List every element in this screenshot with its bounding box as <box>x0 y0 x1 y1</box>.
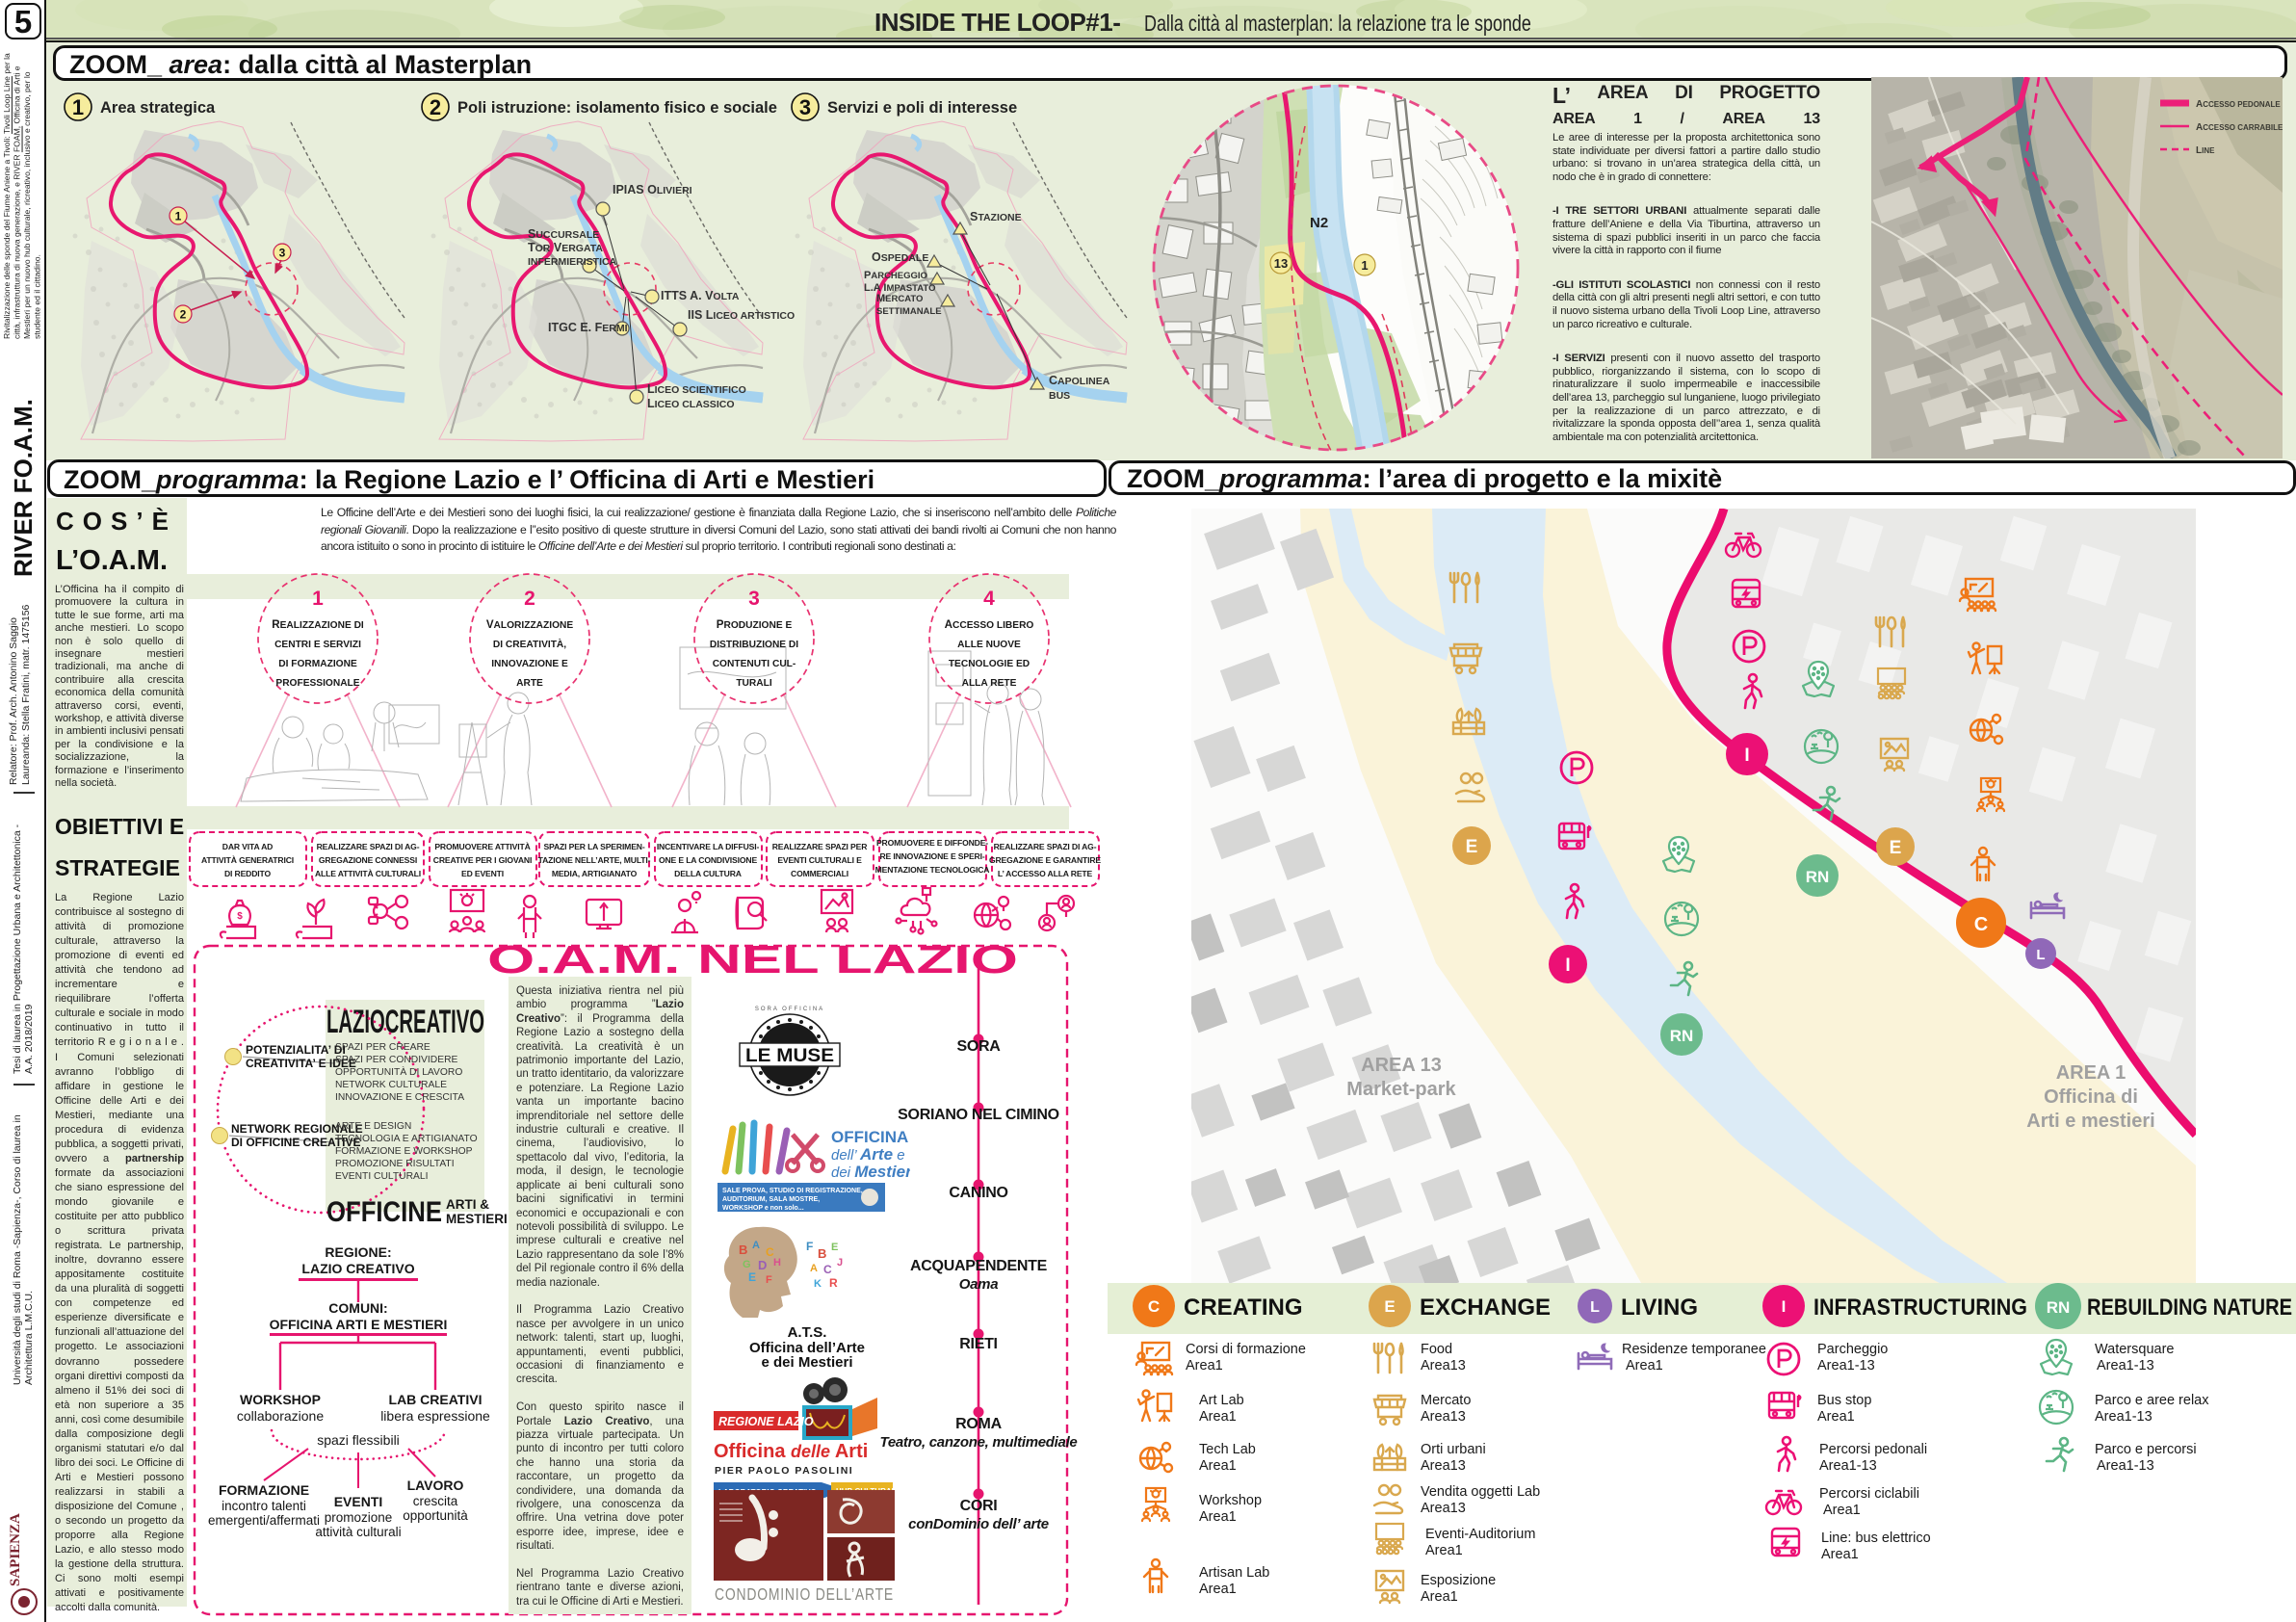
svg-text:LAVORO: LAVORO <box>407 1478 464 1493</box>
svg-text:1: 1 <box>72 95 84 119</box>
svg-text:REALIZZARE SPAZI PER: REALIZZARE SPAZI PER <box>772 842 868 851</box>
svg-text:I: I <box>1744 746 1749 766</box>
svg-text:INNOVAZIONE E: INNOVAZIONE E <box>491 659 568 669</box>
svg-text:L: L <box>1590 1299 1600 1316</box>
svg-text:REALIZZAZIONE DI: REALIZZAZIONE DI <box>272 618 364 631</box>
svg-text:TOR VERGATA: TOR VERGATA <box>528 241 603 254</box>
svg-text:OFFICINA ARTI E MESTIERI: OFFICINA ARTI E MESTIERI <box>270 1317 448 1332</box>
svg-text:C: C <box>1974 914 1988 935</box>
svg-text:B: B <box>739 1243 747 1257</box>
svg-text:Area1-13: Area1-13 <box>2097 1458 2154 1474</box>
svg-text:Servizi e poli di interesse: Servizi e poli di interesse <box>827 99 1017 117</box>
svg-text:ACCESSO CARRABILE: ACCESSO CARRABILE <box>2196 122 2283 133</box>
svg-text:Watersquare: Watersquare <box>2095 1342 2174 1357</box>
svg-text:MERCATO: MERCATO <box>876 293 923 304</box>
svg-text:CONDOMINIO DELL’ARTE: CONDOMINIO DELL’ARTE <box>715 1584 894 1604</box>
svg-text:DELLA CULTURA: DELLA CULTURA <box>674 869 742 878</box>
svg-text:Tech Lab: Tech Lab <box>1199 1442 1256 1457</box>
svg-text:Area1: Area1 <box>1817 1409 1855 1425</box>
svg-text:Corsi di formazione: Corsi di formazione <box>1186 1342 1306 1357</box>
svg-text:WORKSHOP e non solo...: WORKSHOP e non solo... <box>722 1205 804 1212</box>
svg-text:RIETI: RIETI <box>959 1336 997 1352</box>
svg-text:SALE PROVA, STUDIO DI REGISTRA: SALE PROVA, STUDIO DI REGISTRAZIONE, <box>722 1188 863 1194</box>
svg-text:D: D <box>758 1258 767 1272</box>
svg-text:E: E <box>748 1270 756 1284</box>
svg-text:Area1: Area1 <box>1823 1503 1861 1518</box>
svg-text:F: F <box>806 1240 813 1253</box>
svg-text:FORMAZIONE E WORKSHOP: FORMAZIONE E WORKSHOP <box>335 1146 473 1157</box>
svg-text:TAZIONE NELL’ARTE, MULTI-: TAZIONE NELL’ARTE, MULTI- <box>538 855 651 865</box>
svg-text:TURALI: TURALI <box>736 678 772 689</box>
svg-text:Mercato: Mercato <box>1421 1393 1471 1408</box>
svg-text:Area1: Area1 <box>1186 1358 1223 1373</box>
svg-text:INFERMIERISTICA: INFERMIERISTICA <box>528 256 617 268</box>
svg-text:VALORIZZAZIONE: VALORIZZAZIONE <box>486 618 574 631</box>
svg-text:Area1-13: Area1-13 <box>2095 1409 2152 1425</box>
svg-text:F: F <box>766 1274 772 1286</box>
svg-text:I: I <box>1565 955 1570 976</box>
svg-text:Residenze temporanee: Residenze temporanee <box>1622 1342 1766 1357</box>
svg-text:OFFICINE: OFFICINE <box>326 1196 442 1228</box>
svg-text:REALIZZARE SPAZI DI AG-: REALIZZARE SPAZI DI AG- <box>317 842 420 851</box>
svg-text:CREATIVE PER I GIOVANI: CREATIVE PER I GIOVANI <box>433 855 532 865</box>
svg-text:OSPEDALE: OSPEDALE <box>872 250 928 264</box>
svg-text:DI FORMAZIONE: DI FORMAZIONE <box>278 659 357 669</box>
svg-text:COMUNI:: COMUNI: <box>328 1300 387 1316</box>
svg-text:2: 2 <box>524 588 535 610</box>
svg-text:collaborazione: collaborazione <box>237 1408 324 1424</box>
svg-text:CAPOLINEA: CAPOLINEA <box>1049 374 1110 387</box>
svg-text:PROMUOVERE E DIFFONDE-: PROMUOVERE E DIFFONDE- <box>876 838 988 848</box>
svg-text:2: 2 <box>180 308 187 322</box>
svg-text:1: 1 <box>1361 258 1368 273</box>
svg-text:LAB CREATIVI: LAB CREATIVI <box>389 1392 483 1407</box>
svg-text:Area13: Area13 <box>1421 1458 1466 1474</box>
svg-text:SUCCURSALE: SUCCURSALE <box>528 227 599 241</box>
svg-text:ONE E LA CONDIVISIONE: ONE E LA CONDIVISIONE <box>659 855 757 865</box>
svg-text:Esposizione: Esposizione <box>1421 1573 1496 1588</box>
svg-text:ALLE NUOVE: ALLE NUOVE <box>957 640 1021 650</box>
svg-text:Parco e percorsi: Parco e percorsi <box>2095 1442 2197 1457</box>
svg-text:Area1: Area1 <box>1199 1509 1237 1525</box>
svg-text:$: $ <box>237 911 243 922</box>
svg-text:Area1: Area1 <box>1821 1547 1859 1562</box>
svg-text:SETTIMANALE: SETTIMANALE <box>876 306 942 317</box>
svg-text:Food: Food <box>1421 1342 1452 1357</box>
svg-text:spazi flessibili: spazi flessibili <box>317 1432 400 1448</box>
svg-text:3: 3 <box>748 588 760 610</box>
svg-text:3: 3 <box>799 95 811 119</box>
svg-text:Area1: Area1 <box>1626 1358 1663 1373</box>
svg-text:STAZIONE: STAZIONE <box>970 210 1022 223</box>
svg-text:FORMAZIONE: FORMAZIONE <box>219 1482 309 1498</box>
svg-text:C: C <box>1148 1297 1160 1316</box>
svg-text:INCENTIVARE LA DIFFUSI-: INCENTIVARE LA DIFFUSI- <box>657 842 760 851</box>
svg-text:ARTI &: ARTI & <box>446 1197 489 1212</box>
svg-text:E: E <box>1890 838 1902 858</box>
svg-text:R: R <box>829 1276 838 1290</box>
svg-text:Market-park: Market-park <box>1346 1079 1456 1100</box>
svg-text:CORI: CORI <box>960 1498 998 1514</box>
svg-text:INNOVAZIONE E CRESCITA: INNOVAZIONE E CRESCITA <box>335 1092 464 1103</box>
svg-text:SPAZI PER CONDIVIDERE: SPAZI PER CONDIVIDERE <box>335 1055 458 1065</box>
svg-text:OPPORTUNITÀ DI LAVORO: OPPORTUNITÀ DI LAVORO <box>335 1065 462 1078</box>
svg-text:Area1: Area1 <box>1199 1409 1237 1425</box>
svg-text:PIER PAOLO PASOLINI: PIER PAOLO PASOLINI <box>715 1465 853 1477</box>
svg-text:Arti e mestieri: Arti e mestieri <box>2026 1111 2154 1132</box>
svg-text:PROFESSIONALE: PROFESSIONALE <box>275 678 359 689</box>
svg-text:dei Mestieri: dei Mestieri <box>831 1163 910 1181</box>
svg-text:Area strategica: Area strategica <box>100 99 216 117</box>
svg-text:DI CREATIVITÀ,: DI CREATIVITÀ, <box>493 638 566 650</box>
svg-text:I: I <box>1782 1297 1787 1316</box>
svg-text:LE MUSE: LE MUSE <box>745 1046 834 1066</box>
svg-text:libera espressione: libera espressione <box>380 1408 490 1424</box>
svg-text:ROMA: ROMA <box>955 1416 1002 1432</box>
svg-text:SORIANO NEL CIMINO: SORIANO NEL CIMINO <box>898 1107 1059 1123</box>
svg-text:ALLE ATTIVITÀ CULTURALI: ALLE ATTIVITÀ CULTURALI <box>315 869 421 878</box>
svg-text:CANINO: CANINO <box>949 1185 1007 1201</box>
svg-text:LAZIOCREATIVO: LAZIOCREATIVO <box>326 1004 484 1040</box>
svg-text:L’ ACCESSO ALLA RETE: L’ ACCESSO ALLA RETE <box>998 869 1093 878</box>
svg-text:EVENTI: EVENTI <box>334 1494 383 1509</box>
svg-text:POTENZIALITA’ DI: POTENZIALITA’ DI <box>246 1043 346 1057</box>
svg-text:NETWORK CULTURALE: NETWORK CULTURALE <box>335 1080 447 1090</box>
svg-text:ITGC E. FERMI: ITGC E. FERMI <box>548 321 628 334</box>
svg-text:AREA 13: AREA 13 <box>1361 1055 1442 1076</box>
svg-text:Art Lab: Art Lab <box>1199 1393 1244 1408</box>
svg-text:GREGAZIONE E GARANTIRE: GREGAZIONE E GARANTIRE <box>989 855 1101 865</box>
svg-text:N2: N2 <box>1310 215 1328 231</box>
svg-text:RN: RN <box>1806 868 1830 886</box>
svg-text:PROMUOVERE ATTIVITÀ: PROMUOVERE ATTIVITÀ <box>434 842 530 851</box>
svg-text:H: H <box>773 1257 781 1269</box>
svg-text:Area1: Area1 <box>1199 1582 1237 1597</box>
svg-text:C: C <box>823 1263 832 1276</box>
svg-text:conDominio dell’ arte: conDominio dell’ arte <box>908 1516 1049 1532</box>
svg-text:1: 1 <box>175 210 182 223</box>
svg-text:SPAZI PER LA SPERIMEN-: SPAZI PER LA SPERIMEN- <box>543 842 644 851</box>
svg-text:3: 3 <box>279 247 286 260</box>
svg-text:WORKSHOP: WORKSHOP <box>240 1392 321 1407</box>
svg-text:ACCESSO LIBERO: ACCESSO LIBERO <box>945 618 1034 631</box>
svg-text:SORA: SORA <box>956 1038 1001 1055</box>
svg-text:SPAZI PER CREARE: SPAZI PER CREARE <box>335 1042 430 1053</box>
svg-text:Percorsi ciclabili: Percorsi ciclabili <box>1819 1486 1919 1502</box>
svg-text:Officina delle Arti: Officina delle Arti <box>714 1441 868 1462</box>
svg-text:E: E <box>1384 1297 1395 1316</box>
svg-text:emergenti/affermati: emergenti/affermati <box>208 1513 320 1528</box>
svg-text:BUS: BUS <box>1049 390 1070 402</box>
svg-text:Area1: Area1 <box>1421 1589 1458 1605</box>
svg-text:DAR VITA AD: DAR VITA AD <box>222 842 273 851</box>
svg-text:GREGAZIONE CONNESSI: GREGAZIONE CONNESSI <box>319 855 417 865</box>
svg-text:MENTAZIONE TECNOLOGICA: MENTAZIONE TECNOLOGICA <box>875 865 990 875</box>
svg-text:REGIONE:: REGIONE: <box>325 1244 391 1260</box>
svg-text:MEDIA, ARTIGIANATO: MEDIA, ARTIGIANATO <box>552 869 638 878</box>
svg-text:J: J <box>837 1257 843 1269</box>
svg-text:Area1-13: Area1-13 <box>2097 1358 2154 1373</box>
svg-text:TECNOLOGIE ED: TECNOLOGIE ED <box>949 659 1030 669</box>
svg-text:Percorsi pedonali: Percorsi pedonali <box>1819 1442 1927 1457</box>
svg-text:REBUILDING NATURE: REBUILDING NATURE <box>2087 1295 2292 1321</box>
svg-text:Area1: Area1 <box>1199 1458 1237 1474</box>
svg-text:2: 2 <box>430 95 441 119</box>
svg-text:opportunità: opportunità <box>403 1508 468 1523</box>
svg-text:MESTIERI: MESTIERI <box>446 1212 508 1226</box>
svg-text:AREA 1: AREA 1 <box>2056 1062 2126 1084</box>
svg-text:ACQUAPENDENTE: ACQUAPENDENTE <box>910 1258 1048 1274</box>
svg-text:ITTS A. VOLTA: ITTS A. VOLTA <box>661 289 740 302</box>
svg-text:EVENTI CULTURALI: EVENTI CULTURALI <box>335 1171 429 1182</box>
svg-text:PRODUZIONE E: PRODUZIONE E <box>717 618 793 631</box>
svg-text:K: K <box>814 1278 822 1290</box>
svg-text:ALLA RETE: ALLA RETE <box>962 678 1017 689</box>
svg-text:RE INNOVAZIONE E SPERI-: RE INNOVAZIONE E SPERI- <box>879 851 984 861</box>
svg-text:LICEO CLASSICO: LICEO CLASSICO <box>647 397 734 410</box>
svg-text:LINE: LINE <box>2196 145 2215 156</box>
svg-text:ED EVENTI: ED EVENTI <box>461 869 504 878</box>
svg-text:COMMERCIALI: COMMERCIALI <box>791 869 848 878</box>
svg-text:CONTENUTI CUL-: CONTENUTI CUL- <box>713 659 796 669</box>
svg-text:crescita: crescita <box>413 1494 458 1508</box>
svg-text:G: G <box>743 1259 751 1270</box>
svg-text:Area1: Area1 <box>1425 1543 1463 1558</box>
svg-text:PROMOZIONE RISULTATI: PROMOZIONE RISULTATI <box>335 1159 455 1169</box>
svg-text:incontro talenti: incontro talenti <box>222 1499 306 1513</box>
svg-text:A: A <box>810 1263 818 1274</box>
svg-text:1: 1 <box>312 588 324 610</box>
svg-text:AUDITORIUM, SALA MOSTRE,: AUDITORIUM, SALA MOSTRE, <box>722 1196 820 1203</box>
svg-text:dell’ Arte e: dell’ Arte e <box>831 1145 905 1164</box>
svg-text:Line: bus elettrico: Line: bus elettrico <box>1821 1530 1931 1546</box>
svg-text:E: E <box>831 1242 838 1253</box>
svg-text:Poli istruzione: isolamento fi: Poli istruzione: isolamento fisico e soc… <box>457 99 777 117</box>
svg-text:CENTRI E SERVIZI: CENTRI E SERVIZI <box>274 640 361 650</box>
svg-text:Orti urbani: Orti urbani <box>1421 1442 1486 1457</box>
svg-text:ARTE E DESIGN: ARTE E DESIGN <box>335 1121 411 1132</box>
svg-text:Eventi-Auditorium: Eventi-Auditorium <box>1425 1527 1535 1542</box>
svg-text:INFRASTRUCTURING: INFRASTRUCTURING <box>1813 1295 2027 1321</box>
svg-text:Vendita oggetti Lab: Vendita oggetti Lab <box>1421 1484 1540 1500</box>
svg-text:EXCHANGE: EXCHANGE <box>1420 1295 1551 1321</box>
svg-text:13: 13 <box>1274 256 1288 271</box>
svg-text:L: L <box>2036 947 2045 963</box>
svg-text:Area1-13: Area1-13 <box>1817 1358 1875 1373</box>
svg-text:REGIONE LAZIO: REGIONE LAZIO <box>718 1415 814 1428</box>
svg-text:Parcheggio: Parcheggio <box>1817 1342 1888 1357</box>
svg-text:Artisan Lab: Artisan Lab <box>1199 1565 1269 1581</box>
svg-text:LIVING: LIVING <box>1621 1295 1698 1321</box>
svg-text:A: A <box>752 1240 760 1251</box>
svg-text:L.A IMPASTATO: L.A IMPASTATO <box>864 282 935 294</box>
svg-text:Area13: Area13 <box>1421 1501 1466 1516</box>
svg-text:4: 4 <box>983 588 995 610</box>
svg-text:DISTRIBUZIONE DI: DISTRIBUZIONE DI <box>710 640 798 650</box>
svg-text:e dei Mestieri: e dei Mestieri <box>761 1354 852 1371</box>
svg-text:REALIZZARE SPAZI DI AG-: REALIZZARE SPAZI DI AG- <box>994 842 1097 851</box>
svg-text:E: E <box>1466 837 1478 857</box>
svg-text:OFFICINA: OFFICINA <box>831 1128 908 1146</box>
svg-text:Parco e aree relax: Parco e aree relax <box>2095 1393 2209 1408</box>
svg-text:EVENTI CULTURALI E: EVENTI CULTURALI E <box>777 855 862 865</box>
svg-text:ACCESSO PEDONALE: ACCESSO PEDONALE <box>2196 99 2281 110</box>
svg-text:Workshop: Workshop <box>1199 1493 1262 1508</box>
svg-text:IPIAS OLIVIERI: IPIAS OLIVIERI <box>613 183 692 196</box>
svg-text:IIS LICEO ARTISTICO: IIS LICEO ARTISTICO <box>688 308 795 322</box>
svg-text:PARCHEGGIO: PARCHEGGIO <box>864 270 927 281</box>
svg-text:ARTE: ARTE <box>516 678 543 689</box>
svg-text:LICEO SCIENTIFICO: LICEO SCIENTIFICO <box>647 382 746 396</box>
svg-text:promozione: promozione <box>325 1510 393 1525</box>
svg-text:RN: RN <box>2047 1298 2071 1317</box>
svg-text:Officina di: Officina di <box>2044 1086 2138 1108</box>
svg-text:Area13: Area13 <box>1421 1409 1466 1425</box>
svg-text:CREATING: CREATING <box>1184 1295 1303 1321</box>
svg-text:TECNOLOGIA E ARTIGIANATO: TECNOLOGIA E ARTIGIANATO <box>335 1134 478 1144</box>
svg-text:Bus stop: Bus stop <box>1817 1393 1871 1408</box>
svg-text:LAZIO CREATIVO: LAZIO CREATIVO <box>301 1261 414 1276</box>
svg-text:attività culturali: attività culturali <box>315 1525 401 1539</box>
svg-text:Area1-13: Area1-13 <box>1819 1458 1877 1474</box>
svg-text:DI REDDITO: DI REDDITO <box>224 869 271 878</box>
svg-text:SORA OFFICINA: SORA OFFICINA <box>755 1007 824 1012</box>
svg-text:A.T.S.: A.T.S. <box>788 1324 827 1341</box>
svg-text:Oama: Oama <box>959 1276 999 1293</box>
svg-text:ATTIVITÀ GENERATRICI: ATTIVITÀ GENERATRICI <box>201 855 294 865</box>
svg-text:RN: RN <box>1670 1027 1694 1045</box>
svg-text:Area13: Area13 <box>1421 1358 1466 1373</box>
svg-text:B: B <box>818 1246 826 1261</box>
